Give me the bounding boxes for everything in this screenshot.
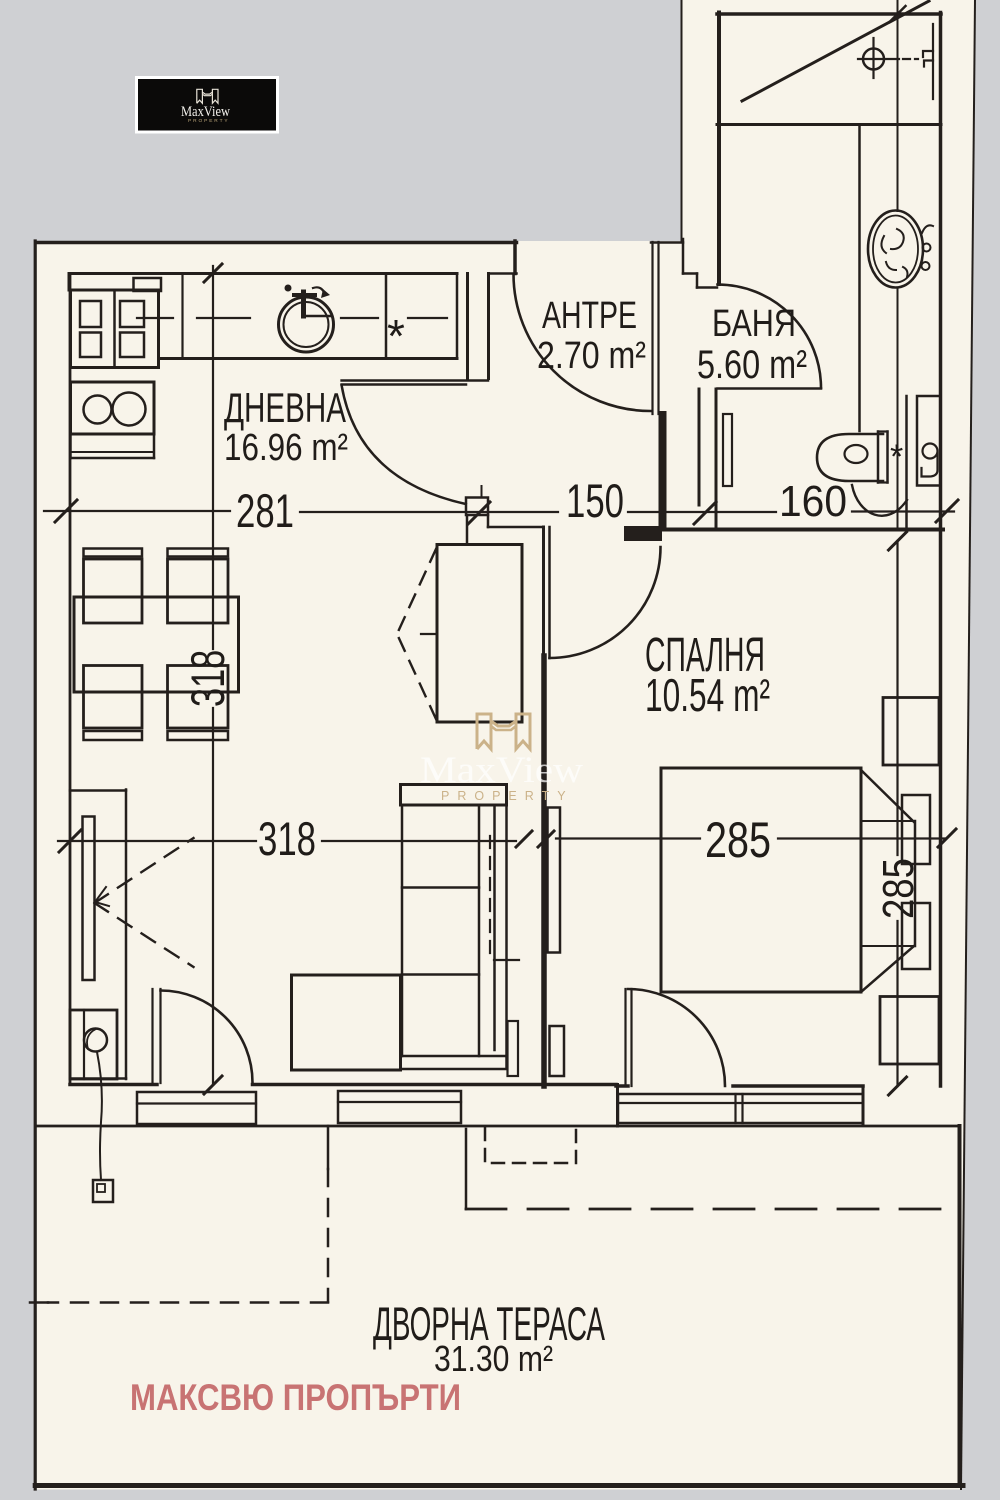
svg-text:318: 318 bbox=[182, 650, 235, 707]
svg-text:285: 285 bbox=[705, 812, 771, 868]
svg-text:318: 318 bbox=[258, 812, 316, 865]
svg-text:160: 160 bbox=[779, 477, 847, 526]
svg-text:2.70 m²: 2.70 m² bbox=[537, 335, 646, 377]
svg-text:АНТРЕ: АНТРЕ bbox=[542, 295, 637, 337]
svg-text:МАКСВЮ ПРОПЪРТИ: МАКСВЮ ПРОПЪРТИ bbox=[130, 1377, 461, 1418]
svg-text:150: 150 bbox=[566, 474, 624, 527]
svg-text:PROPERTY: PROPERTY bbox=[188, 118, 230, 124]
svg-text:31.30 m²: 31.30 m² bbox=[434, 1338, 553, 1379]
svg-text:MaxView: MaxView bbox=[420, 750, 583, 791]
svg-text:5.60 m²: 5.60 m² bbox=[697, 343, 807, 387]
svg-text:*: * bbox=[890, 438, 903, 476]
svg-text:10.54 m²: 10.54 m² bbox=[645, 669, 770, 721]
svg-text:PROPERTY: PROPERTY bbox=[441, 789, 574, 803]
svg-text:БАНЯ: БАНЯ bbox=[712, 303, 796, 345]
svg-text:281: 281 bbox=[236, 484, 294, 537]
svg-text:16.96 m²: 16.96 m² bbox=[224, 427, 348, 469]
svg-text:ДНЕВНА: ДНЕВНА bbox=[224, 384, 346, 431]
svg-text:MaxView: MaxView bbox=[181, 104, 230, 120]
svg-text:285: 285 bbox=[873, 858, 923, 919]
svg-text:*: * bbox=[387, 310, 405, 362]
